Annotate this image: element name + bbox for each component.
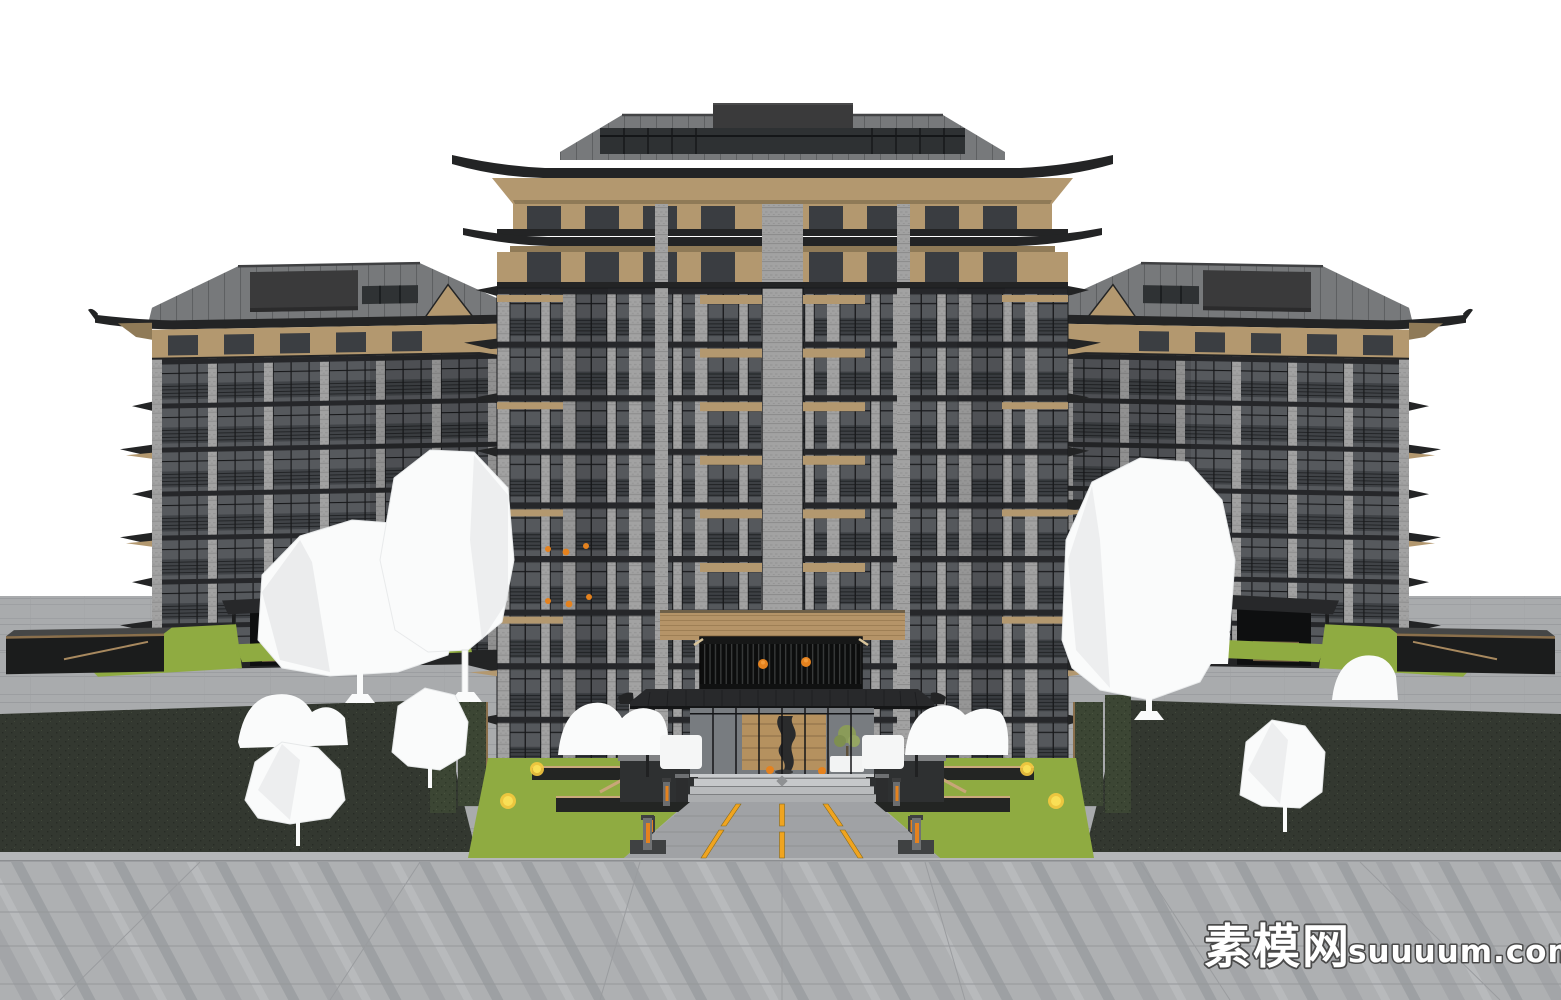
watermark-domain: suuuum.com [1348, 934, 1561, 970]
side-kiosk-wall [6, 627, 172, 674]
slat-screen [700, 637, 862, 690]
scene-svg: 素模网 suuuum.com [0, 0, 1561, 1000]
entrance-steps [686, 775, 878, 802]
hedge-pillar [1105, 695, 1131, 813]
render-canvas: 素模网 suuuum.com [0, 0, 1561, 1000]
watermark-site-name: 素模网 [1204, 920, 1351, 975]
center-attic-floors [463, 204, 1102, 288]
side-rooftop-box [250, 270, 358, 312]
glass-lobby [690, 708, 874, 777]
entrance-canopy [630, 689, 934, 708]
deck-band [660, 612, 905, 640]
